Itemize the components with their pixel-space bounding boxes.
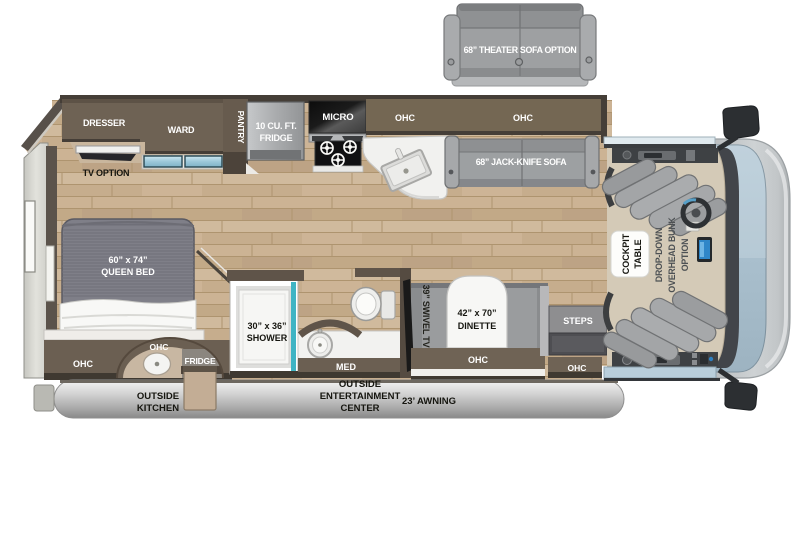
svg-text:KITCHEN: KITCHEN	[137, 403, 179, 414]
svg-text:DROP-DOWN: DROP-DOWN	[654, 228, 664, 282]
svg-text:STEPS: STEPS	[563, 316, 593, 326]
svg-text:QUEEN BED: QUEEN BED	[101, 267, 155, 277]
svg-text:MED: MED	[336, 362, 357, 372]
svg-text:OHC: OHC	[513, 113, 534, 123]
svg-text:OHC: OHC	[468, 355, 489, 365]
svg-text:FRIDGE: FRIDGE	[185, 356, 216, 366]
svg-text:WARD: WARD	[168, 125, 195, 135]
svg-text:OHC: OHC	[568, 363, 587, 373]
svg-text:MICRO: MICRO	[322, 112, 353, 123]
svg-text:42” x 70”: 42” x 70”	[457, 308, 496, 318]
svg-text:SHOWER: SHOWER	[247, 333, 288, 343]
svg-text:68” JACK-KNIFE SOFA: 68” JACK-KNIFE SOFA	[476, 157, 568, 167]
svg-text:OUTSIDE: OUTSIDE	[137, 391, 179, 402]
svg-text:OVERHEAD BUNK: OVERHEAD BUNK	[667, 217, 677, 293]
svg-text:OUTSIDE: OUTSIDE	[339, 379, 381, 390]
svg-text:OHC: OHC	[73, 359, 94, 369]
svg-text:39” SWIVEL TV: 39” SWIVEL TV	[421, 285, 431, 348]
svg-text:TV OPTION: TV OPTION	[83, 168, 130, 178]
svg-text:60” x 74”: 60” x 74”	[108, 255, 147, 265]
svg-text:30” x 36”: 30” x 36”	[247, 321, 286, 331]
svg-text:CENTER: CENTER	[340, 403, 379, 414]
svg-text:OHC: OHC	[395, 113, 416, 123]
svg-text:DINETTE: DINETTE	[458, 321, 497, 331]
svg-text:COCKPIT: COCKPIT	[621, 233, 631, 274]
svg-text:23’ AWNING: 23’ AWNING	[402, 396, 456, 407]
svg-text:OPTION: OPTION	[680, 239, 690, 272]
svg-text:FRIDGE: FRIDGE	[260, 133, 293, 143]
svg-text:PANTRY: PANTRY	[236, 111, 246, 144]
svg-text:DRESSER: DRESSER	[83, 118, 126, 128]
svg-text:TABLE: TABLE	[633, 239, 643, 268]
svg-text:ENTERTAINMENT: ENTERTAINMENT	[320, 391, 401, 402]
svg-text:10 CU. FT.: 10 CU. FT.	[255, 121, 296, 131]
svg-text:68” THEATER SOFA OPTION: 68” THEATER SOFA OPTION	[464, 45, 577, 55]
svg-text:OHC: OHC	[150, 342, 169, 352]
